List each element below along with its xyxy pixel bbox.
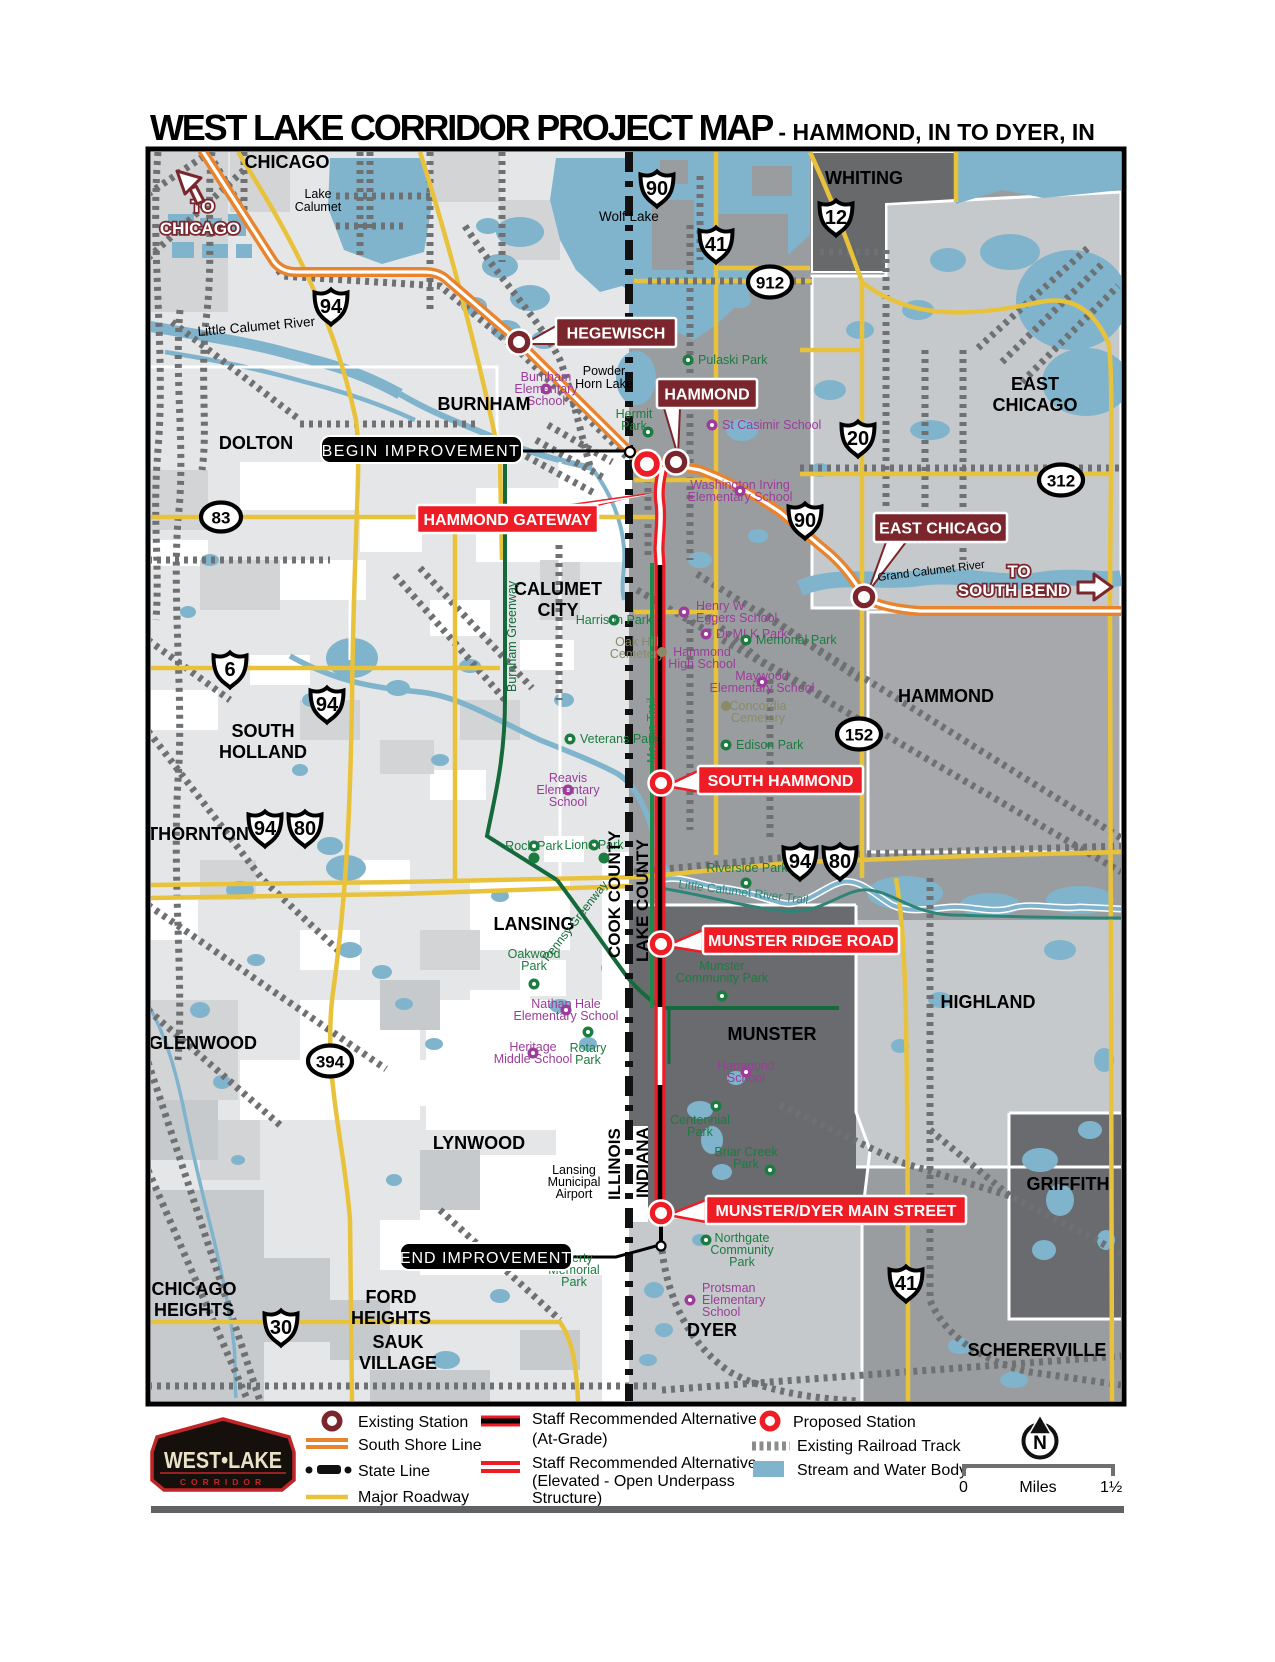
svg-text:MUNSTER RIDGE ROAD: MUNSTER RIDGE ROAD	[708, 933, 894, 950]
svg-text:HEIGHTS: HEIGHTS	[351, 1308, 431, 1328]
svg-text:WEST•LAKE: WEST•LAKE	[164, 1447, 282, 1473]
svg-text:CHICAGO: CHICAGO	[160, 219, 240, 238]
svg-text:SAUK: SAUK	[372, 1332, 423, 1352]
svg-text:HEGEWISCH: HEGEWISCH	[567, 326, 666, 343]
svg-text:HAMMOND: HAMMOND	[898, 686, 994, 706]
svg-text:Staff Recommended Alternative: Staff Recommended Alternative	[532, 1411, 757, 1428]
svg-text:Existing Station: Existing Station	[358, 1414, 468, 1431]
svg-text:Pulaski Park: Pulaski Park	[698, 353, 768, 367]
svg-text:(At-Grade): (At-Grade)	[532, 1431, 608, 1448]
svg-text:FORD: FORD	[366, 1287, 417, 1307]
svg-text:Existing Railroad Track: Existing Railroad Track	[797, 1438, 962, 1455]
svg-text:Burnham Greenway: Burnham Greenway	[505, 580, 519, 692]
svg-text:St Casimir School: St Casimir School	[722, 418, 821, 432]
svg-text:GLENWOOD: GLENWOOD	[149, 1033, 257, 1053]
svg-text:Major Roadway: Major Roadway	[358, 1489, 469, 1506]
svg-text:83: 83	[212, 509, 231, 528]
svg-text:312: 312	[1047, 472, 1075, 491]
svg-text:WHITING: WHITING	[825, 168, 903, 188]
svg-text:90: 90	[646, 178, 668, 200]
svg-text:Edison Park: Edison Park	[736, 738, 804, 752]
svg-text:Powder: Powder	[583, 364, 625, 378]
svg-text:School: School	[727, 1071, 765, 1085]
svg-text:94: 94	[254, 818, 277, 840]
svg-text:HAMMOND: HAMMOND	[664, 387, 749, 404]
svg-text:SOUTH: SOUTH	[232, 721, 295, 741]
svg-text:Horn Lake: Horn Lake	[575, 377, 633, 391]
svg-text:Middle School: Middle School	[494, 1052, 573, 1066]
svg-text:GRIFFITH: GRIFFITH	[1027, 1174, 1110, 1194]
svg-text:School: School	[549, 795, 587, 809]
svg-text:20: 20	[847, 428, 869, 450]
svg-text:0: 0	[959, 1479, 968, 1496]
svg-text:912: 912	[756, 274, 784, 293]
svg-text:EAST: EAST	[1011, 374, 1059, 394]
svg-text:Memorial Park: Memorial Park	[756, 633, 837, 647]
svg-text:SOUTH HAMMOND: SOUTH HAMMOND	[708, 773, 854, 790]
svg-text:(Elevated - Open Underpass: (Elevated - Open Underpass	[532, 1473, 735, 1490]
svg-text:90: 90	[794, 510, 816, 532]
svg-text:Monon Trail: Monon Trail	[645, 698, 659, 763]
svg-text:Park: Park	[561, 1275, 587, 1289]
svg-text:CITY: CITY	[537, 600, 578, 620]
svg-text:School: School	[702, 1305, 740, 1319]
svg-text:Riverside Park: Riverside Park	[706, 861, 788, 875]
svg-text:INDIANA: INDIANA	[633, 1127, 652, 1198]
svg-text:Staff Recommended Alternative: Staff Recommended Alternative	[532, 1455, 757, 1472]
svg-text:94: 94	[789, 851, 812, 873]
svg-text:SCHERERVILLE: SCHERERVILLE	[968, 1340, 1107, 1360]
svg-text:Eggers School: Eggers School	[696, 611, 777, 625]
svg-text:Calumet: Calumet	[295, 200, 342, 214]
svg-text:COOK COUNTY: COOK COUNTY	[605, 830, 624, 958]
svg-text:High School: High School	[668, 657, 735, 671]
svg-text:Structure): Structure)	[532, 1490, 602, 1507]
svg-text:HEIGHTS: HEIGHTS	[154, 1300, 234, 1320]
svg-text:Park: Park	[521, 959, 547, 973]
svg-text:EAST CHICAGO: EAST CHICAGO	[879, 521, 1002, 538]
svg-text:1½: 1½	[1100, 1479, 1122, 1496]
svg-text:Park: Park	[729, 1255, 755, 1269]
svg-text:94: 94	[316, 694, 339, 716]
svg-text:Park: Park	[687, 1125, 713, 1139]
svg-text:South Shore Line: South Shore Line	[358, 1437, 482, 1454]
svg-text:DOLTON: DOLTON	[219, 433, 293, 453]
svg-text:TO: TO	[1007, 562, 1030, 581]
svg-text:152: 152	[845, 726, 873, 745]
svg-text:80: 80	[829, 851, 851, 873]
svg-text:41: 41	[895, 1273, 917, 1295]
svg-text:41: 41	[705, 234, 727, 256]
svg-text:THORNTON: THORNTON	[147, 824, 249, 844]
svg-text:SOUTH BEND: SOUTH BEND	[958, 581, 1070, 600]
svg-text:Wolf Lake: Wolf Lake	[599, 209, 659, 224]
svg-text:Elementary School: Elementary School	[710, 681, 815, 695]
svg-text:Harrison Park: Harrison Park	[576, 613, 653, 627]
svg-text:CHICAGO: CHICAGO	[245, 152, 330, 172]
svg-text:Airport: Airport	[556, 1187, 593, 1201]
svg-text:HAMMOND GATEWAY: HAMMOND GATEWAY	[424, 512, 592, 529]
svg-text:LYNWOOD: LYNWOOD	[433, 1133, 525, 1153]
svg-text:Miles: Miles	[1019, 1479, 1056, 1496]
svg-text:LAKE COUNTY: LAKE COUNTY	[633, 839, 652, 962]
svg-text:94: 94	[320, 296, 343, 318]
svg-text:394: 394	[316, 1053, 345, 1072]
svg-text:Elementary School: Elementary School	[688, 490, 793, 504]
svg-text:ILLINOIS: ILLINOIS	[605, 1128, 624, 1200]
svg-text:State Line: State Line	[358, 1463, 430, 1480]
svg-text:CORRIDOR: CORRIDOR	[180, 1477, 266, 1487]
svg-text:6: 6	[224, 659, 235, 681]
svg-text:Lake: Lake	[304, 187, 331, 201]
svg-text:BURNHAM: BURNHAM	[438, 394, 531, 414]
svg-text:Community Park: Community Park	[676, 971, 769, 985]
svg-text:BEGIN IMPROVEMENT: BEGIN IMPROVEMENT	[322, 443, 521, 460]
svg-text:Elementary School: Elementary School	[514, 1009, 619, 1023]
svg-text:CALUMET: CALUMET	[514, 579, 602, 599]
svg-text:Cemetery: Cemetery	[731, 711, 786, 725]
svg-text:N: N	[1033, 1433, 1047, 1454]
svg-text:Rock Park: Rock Park	[505, 839, 563, 853]
svg-text:VILLAGE: VILLAGE	[359, 1353, 437, 1373]
svg-text:12: 12	[825, 207, 847, 229]
svg-text:HOLLAND: HOLLAND	[219, 742, 307, 762]
svg-text:END IMPROVEMENT: END IMPROVEMENT	[400, 1250, 572, 1267]
svg-text:HIGHLAND: HIGHLAND	[941, 992, 1036, 1012]
svg-text:MUNSTER/DYER MAIN STREET: MUNSTER/DYER MAIN STREET	[716, 1203, 957, 1220]
svg-text:80: 80	[294, 818, 316, 840]
svg-text:Park: Park	[575, 1053, 601, 1067]
svg-text:Park: Park	[733, 1157, 759, 1171]
svg-text:Proposed Station: Proposed Station	[793, 1414, 916, 1431]
svg-text:CHICAGO: CHICAGO	[152, 1279, 237, 1299]
svg-text:School: School	[527, 394, 565, 408]
svg-text:Stream and Water Body: Stream and Water Body	[797, 1462, 967, 1479]
svg-text:MUNSTER: MUNSTER	[728, 1024, 817, 1044]
svg-text:DYER: DYER	[687, 1320, 737, 1340]
svg-text:CHICAGO: CHICAGO	[993, 395, 1078, 415]
svg-text:30: 30	[270, 1317, 292, 1339]
svg-text:Cemetery: Cemetery	[610, 647, 665, 661]
